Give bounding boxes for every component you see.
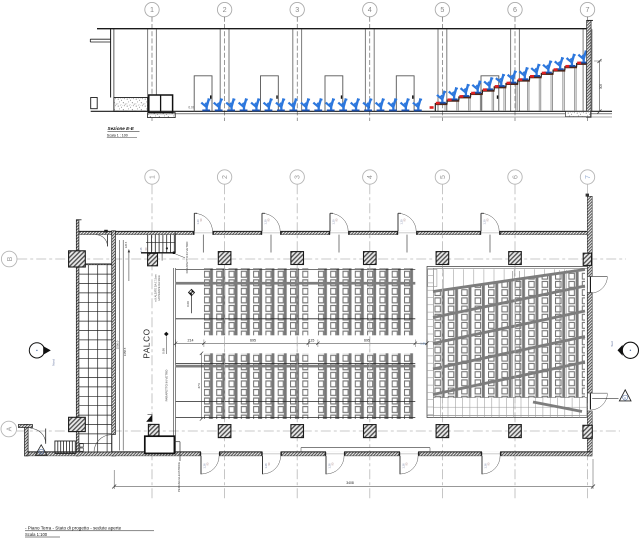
svg-text:90: 90	[404, 218, 407, 221]
svg-text:126.5: 126.5	[124, 241, 128, 248]
svg-text:7: 7	[586, 5, 590, 14]
svg-text:1.26: 1.26	[139, 247, 143, 253]
svg-text:1506.0: 1506.0	[115, 340, 119, 349]
svg-text:U: U	[40, 450, 42, 454]
svg-text:90: 90	[405, 462, 408, 465]
svg-text:n.9 ALZATE DA 17.5cm: n.9 ALZATE DA 17.5cm	[153, 274, 157, 301]
svg-text:PARAPETTO IN VETRO: PARAPETTO IN VETRO	[165, 369, 169, 401]
svg-text:Nord: Nord	[52, 359, 56, 366]
svg-text:PALCO: PALCO	[143, 328, 152, 358]
svg-text:90: 90	[336, 218, 339, 221]
svg-text:Sud: Sud	[610, 341, 614, 347]
svg-text:4: 4	[367, 175, 374, 179]
svg-text:90: 90	[200, 218, 203, 221]
svg-text:- Piano Terra - Stato di proge: - Piano Terra - Stato di progetto - sedu…	[25, 526, 122, 531]
svg-text:90: 90	[206, 462, 209, 465]
svg-text:n.8 PEDATE DA 30cm: n.8 PEDATE DA 30cm	[157, 275, 161, 301]
svg-text:115: 115	[309, 339, 315, 343]
svg-text:Scala 1:100: Scala 1:100	[25, 532, 48, 537]
svg-text:5: 5	[440, 5, 444, 14]
svg-text:90: 90	[487, 218, 490, 221]
svg-text:1458.5: 1458.5	[123, 347, 127, 356]
svg-text:PEDANA ELEVATRICE: PEDANA ELEVATRICE	[177, 462, 181, 492]
svg-text:90: 90	[331, 462, 334, 465]
svg-text:695: 695	[364, 339, 370, 343]
svg-text:90: 90	[268, 218, 271, 221]
svg-text:B: B	[7, 256, 14, 261]
svg-text:1: 1	[150, 5, 154, 14]
svg-text:695: 695	[250, 339, 256, 343]
svg-text:U: U	[624, 396, 626, 400]
svg-text:Scala 1 : 100: Scala 1 : 100	[107, 133, 128, 137]
svg-text:0.00: 0.00	[186, 301, 190, 307]
svg-text:90: 90	[268, 462, 271, 465]
svg-text:Sezione E-E: Sezione E-E	[108, 126, 135, 131]
svg-text:2: 2	[222, 175, 229, 179]
svg-text:3408: 3408	[346, 481, 354, 485]
svg-text:4: 4	[368, 5, 372, 14]
svg-text:A: A	[6, 426, 13, 431]
svg-text:305: 305	[599, 84, 603, 90]
svg-text:3: 3	[295, 175, 302, 179]
svg-text:90: 90	[487, 462, 490, 465]
svg-text:2: 2	[223, 5, 227, 14]
svg-text:PARAPETTO IN VETRO: PARAPETTO IN VETRO	[185, 241, 189, 273]
svg-text:474: 474	[197, 383, 201, 388]
svg-text:1: 1	[149, 175, 156, 179]
svg-text:214: 214	[188, 339, 194, 343]
svg-text:3: 3	[295, 5, 299, 14]
svg-text:0.98: 0.98	[162, 348, 166, 354]
svg-text:6: 6	[512, 175, 519, 179]
svg-text:1.26: 1.26	[420, 342, 426, 346]
svg-text:5: 5	[440, 175, 447, 179]
svg-text:6: 6	[513, 5, 517, 14]
svg-text:7: 7	[585, 175, 592, 179]
